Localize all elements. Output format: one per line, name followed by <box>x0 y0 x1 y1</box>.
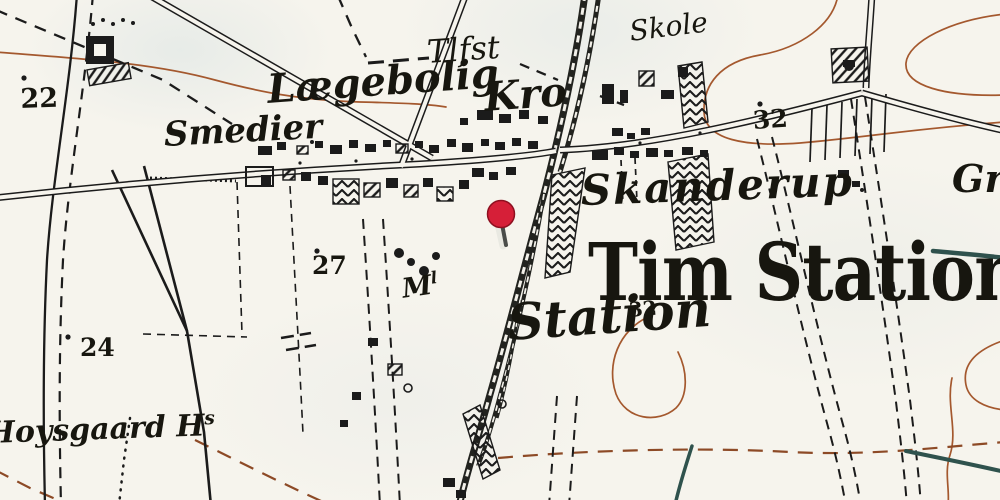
label-smedier: Smedier <box>163 110 323 152</box>
red-location-pin[interactable] <box>488 201 515 247</box>
label-hoysgaard: Hoysgaard Hs <box>0 410 216 449</box>
map-canvas[interactable]: Tlfst Skole Lægebolig Kro Smedier Skande… <box>0 0 1000 500</box>
label-station: Station <box>506 284 712 348</box>
number-32-top: 32 <box>752 106 788 133</box>
label-gaard-partial: Gr <box>952 160 1000 198</box>
number-22: 22 <box>20 85 58 113</box>
number-24: 24 <box>80 335 115 360</box>
label-skanderup: Skanderup <box>580 160 855 212</box>
number-27: 27 <box>312 253 347 278</box>
label-moelle: Ml <box>400 269 440 303</box>
number-32-mid: 32 <box>628 298 657 320</box>
label-kro: Kro <box>483 72 568 118</box>
